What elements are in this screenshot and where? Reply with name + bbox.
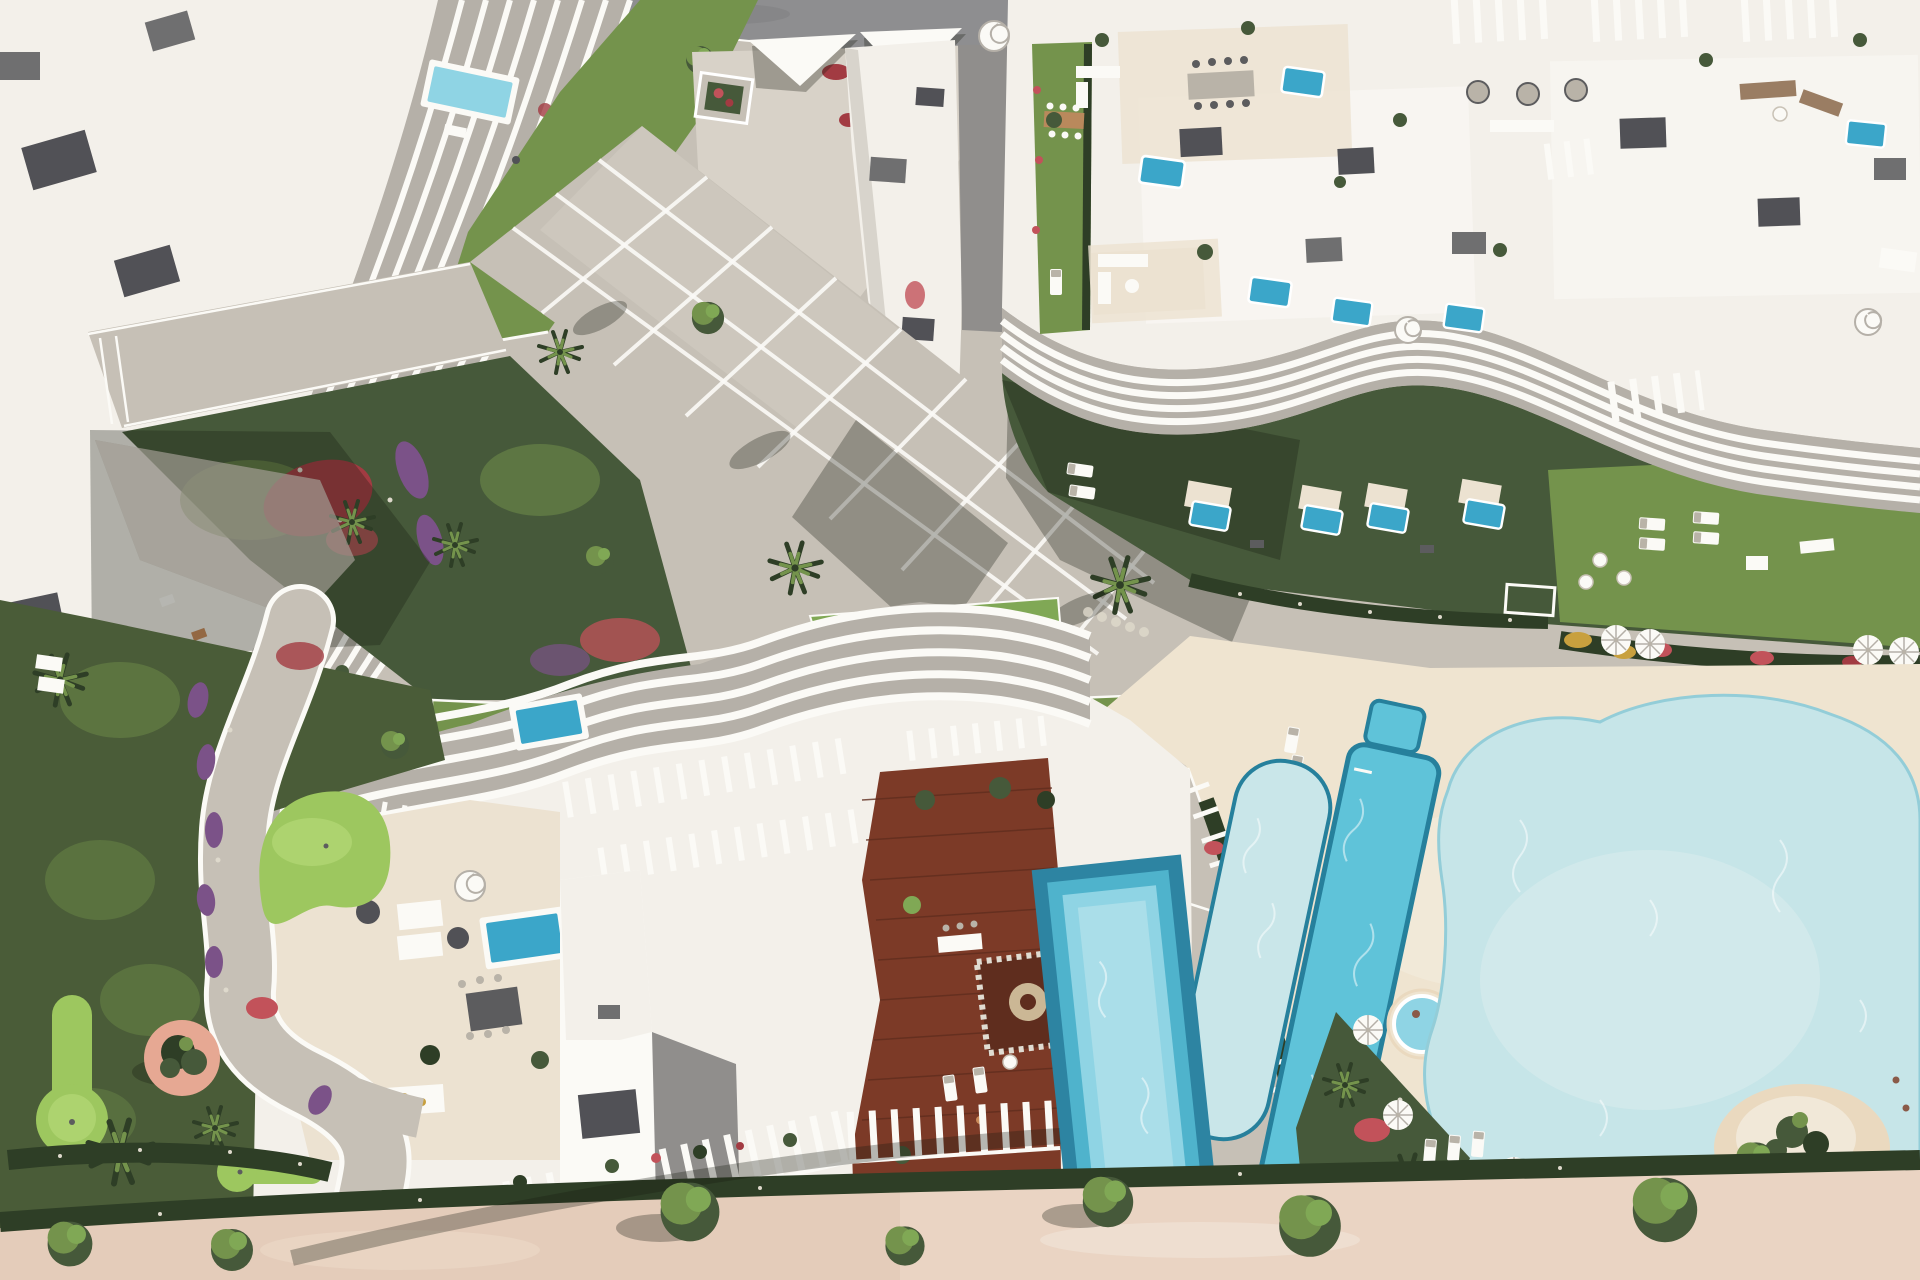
round-chair [1467, 81, 1489, 103]
private-plunge-pool [1189, 501, 1231, 531]
parasol [1353, 1015, 1383, 1045]
round-chair [1517, 83, 1539, 105]
tree [1083, 1177, 1133, 1227]
aerial-render-stage [0, 0, 1920, 1280]
parasol [1601, 625, 1631, 655]
tree [381, 731, 409, 759]
tree [692, 302, 724, 334]
private-plunge-pool [1367, 503, 1409, 533]
sun-lounger [1639, 517, 1666, 531]
sun-lounger [1693, 531, 1720, 545]
tree [885, 1226, 924, 1265]
plaza-planter [695, 73, 753, 124]
sun-lounger [1639, 537, 1666, 551]
spiral-stair [455, 871, 485, 901]
tree [586, 546, 614, 574]
parasol [1383, 1100, 1413, 1130]
round-chair [1565, 79, 1587, 101]
flower-bed-red [580, 618, 660, 662]
sun-lounger [1693, 511, 1720, 525]
swimmer [1903, 1105, 1910, 1112]
aerial-site-plan [0, 0, 1920, 1280]
swimmer [1893, 1077, 1900, 1084]
private-plunge-pool [1463, 499, 1505, 529]
tree [211, 1229, 253, 1271]
parasol [1853, 635, 1883, 665]
tree [661, 1183, 720, 1242]
parasol [1889, 637, 1919, 667]
private-plunge-pool [1301, 505, 1343, 535]
tree [48, 1222, 93, 1267]
parasol [1635, 629, 1665, 659]
tree [1279, 1195, 1341, 1257]
tree [1633, 1178, 1697, 1242]
